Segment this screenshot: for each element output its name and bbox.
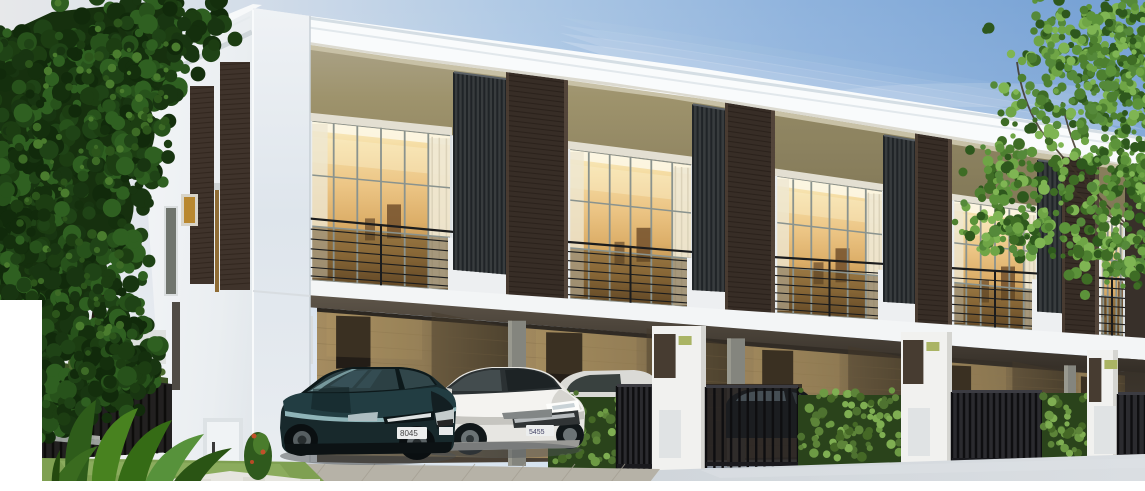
svg-text:8045: 8045	[400, 429, 418, 438]
svg-text:5455: 5455	[529, 429, 545, 436]
